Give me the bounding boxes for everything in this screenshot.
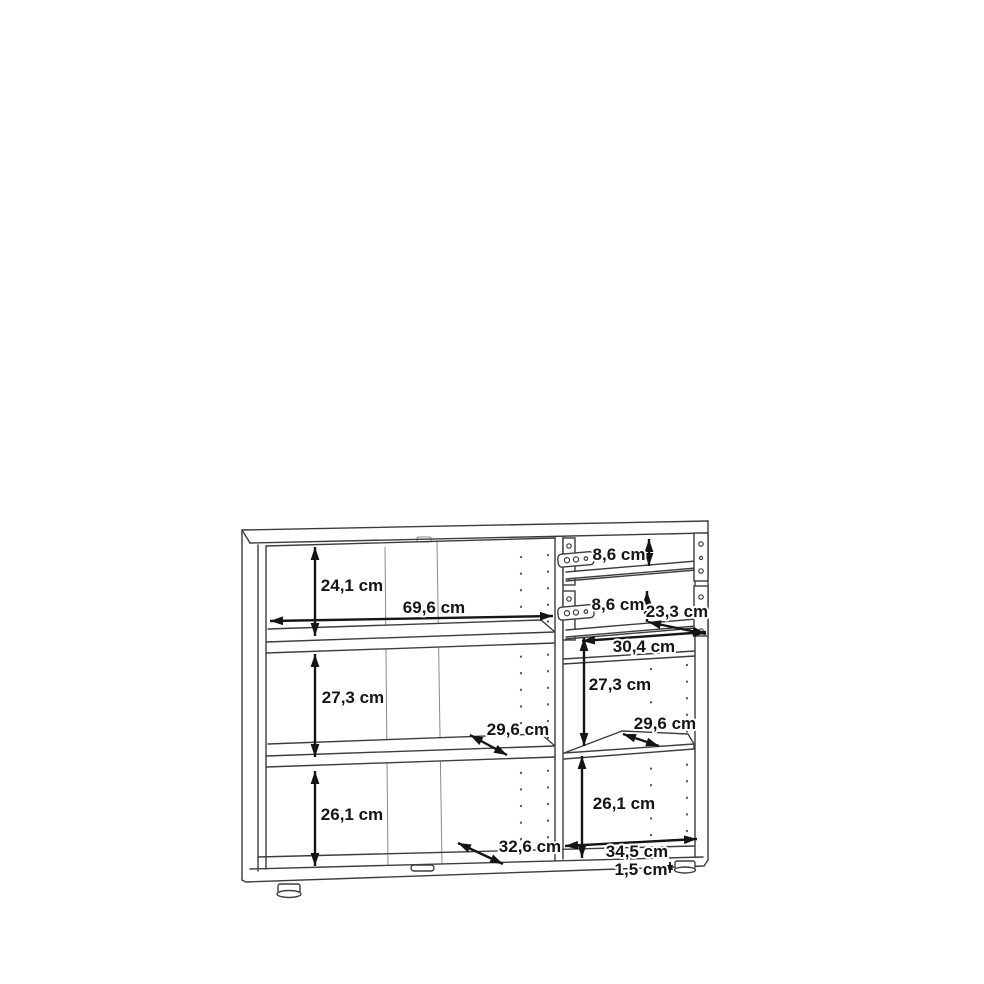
label-right-middle-height: 27,3 cm — [589, 675, 651, 694]
label-left-width: 69,6 cm — [403, 598, 465, 617]
label-drawer-width: 30,4 cm — [613, 637, 675, 656]
label-bottom-depth: 32,6 cm — [499, 837, 561, 856]
left-foot — [277, 884, 301, 898]
dimension-labels: 24,1 cm 69,6 cm 8,6 cm 8,6 cm 23,3 cm 30… — [321, 545, 708, 879]
label-drawer-depth: 23,3 cm — [646, 602, 708, 621]
cabinet-line-drawing: 24,1 cm 69,6 cm 8,6 cm 8,6 cm 23,3 cm 30… — [0, 0, 984, 984]
label-left-middle-height: 27,3 cm — [322, 688, 384, 707]
label-plinth-height: 1,5 cm — [615, 860, 668, 879]
label-right-width: 34,5 cm — [606, 842, 668, 861]
arrow-bottom-depth — [458, 843, 503, 864]
back-panel-seams — [385, 537, 442, 866]
label-right-shelf-depth: 29,6 cm — [634, 714, 696, 733]
right-foot — [675, 861, 696, 873]
label-top-drawer-height: 8,6 cm — [593, 545, 646, 564]
label-left-bottom-height: 26,1 cm — [321, 805, 383, 824]
plinth-slot — [411, 865, 434, 871]
top-drawer-slide-rail — [557, 551, 594, 567]
second-drawer-slide-rail — [557, 604, 594, 620]
label-second-drawer-height: 8,6 cm — [592, 595, 645, 614]
label-right-bottom-height: 26,1 cm — [593, 794, 655, 813]
label-left-top-height: 24,1 cm — [321, 576, 383, 595]
left-shelves — [266, 620, 555, 767]
furniture-dimension-diagram: 24,1 cm 69,6 cm 8,6 cm 8,6 cm 23,3 cm 30… — [0, 0, 984, 984]
label-left-shelf-depth: 29,6 cm — [487, 720, 549, 739]
